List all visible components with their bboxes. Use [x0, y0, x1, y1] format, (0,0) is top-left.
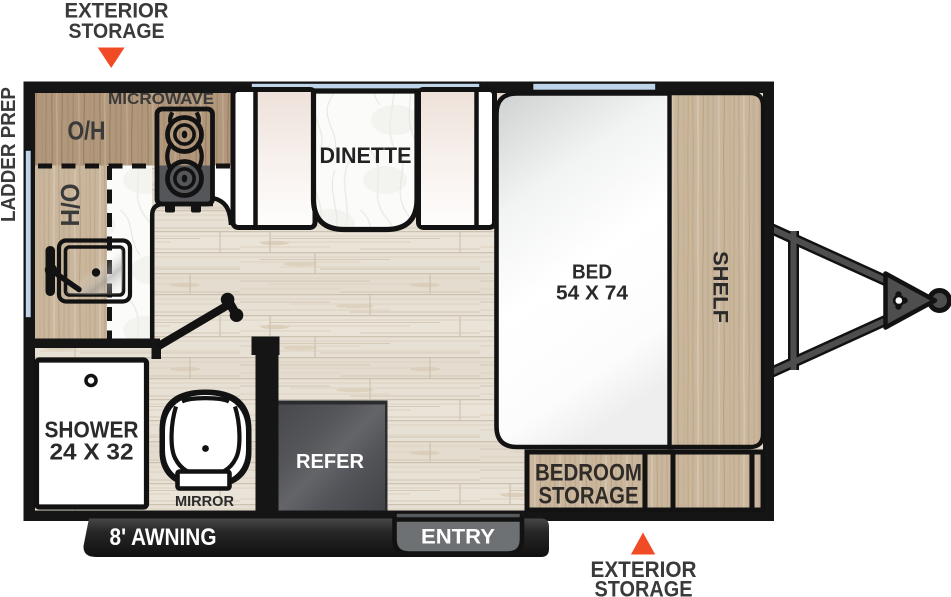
svg-text:O/H: O/H	[55, 184, 85, 227]
svg-text:24 X 32: 24 X 32	[50, 439, 134, 465]
svg-text:8' AWNING: 8' AWNING	[110, 524, 217, 551]
svg-text:MICROWAVE: MICROWAVE	[108, 91, 214, 108]
svg-text:SHELF: SHELF	[709, 251, 732, 323]
svg-text:O/H: O/H	[68, 116, 106, 146]
svg-text:ENTRY: ENTRY	[421, 526, 495, 549]
svg-text:BED: BED	[572, 262, 612, 284]
svg-text:REFER: REFER	[296, 451, 365, 473]
svg-text:STORAGE: STORAGE	[69, 20, 165, 43]
svg-text:MIRROR: MIRROR	[175, 493, 234, 510]
svg-text:DINETTE: DINETTE	[320, 143, 412, 168]
svg-text:LADDER PREP: LADDER PREP	[0, 87, 20, 222]
svg-text:STORAGE: STORAGE	[539, 483, 639, 510]
svg-text:54 X 74: 54 X 74	[556, 283, 629, 305]
svg-text:STORAGE: STORAGE	[595, 577, 693, 597]
